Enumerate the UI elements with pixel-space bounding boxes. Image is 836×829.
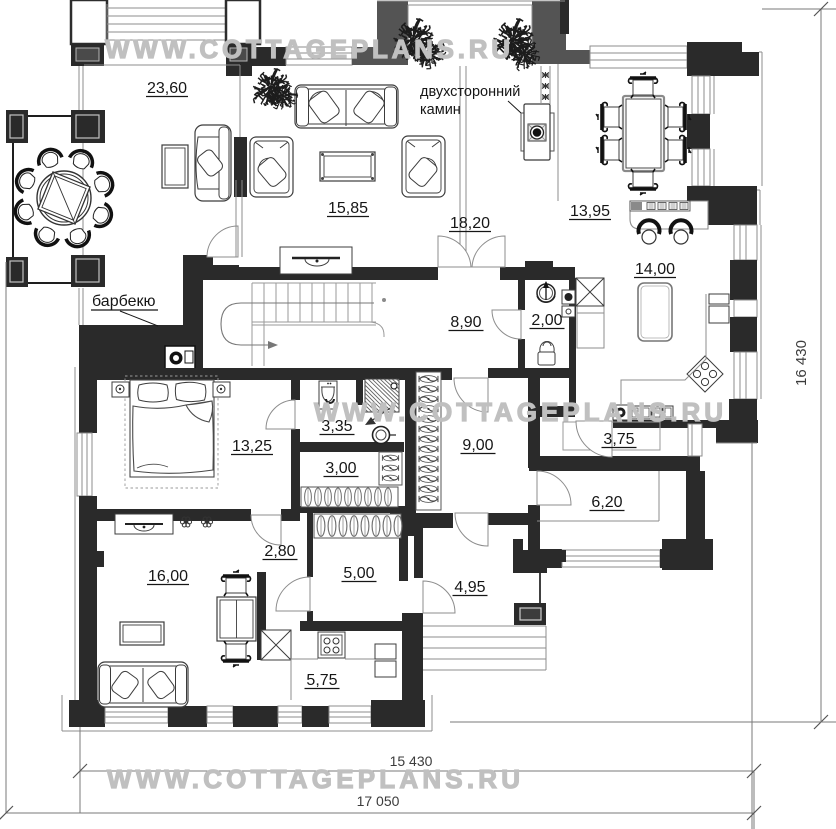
svg-text:3,00: 3,00 [325,460,356,477]
svg-text:13,25: 13,25 [232,438,272,455]
svg-text:WWW.COTTAGEPLANS.RU: WWW.COTTAGEPLANS.RU [105,34,510,64]
svg-text:2,80: 2,80 [264,543,295,560]
svg-text:6,20: 6,20 [591,494,622,511]
svg-text:9,00: 9,00 [462,437,493,454]
svg-text:15,85: 15,85 [328,200,368,217]
svg-text:5,00: 5,00 [343,565,374,582]
svg-text:18,20: 18,20 [450,215,490,232]
svg-text:17 050: 17 050 [357,793,400,809]
svg-text:двухсторонний: двухсторонний [420,84,520,100]
svg-text:2,00: 2,00 [531,312,562,329]
svg-text:WWW.COTTAGEPLANS.RU: WWW.COTTAGEPLANS.RU [107,764,520,794]
svg-text:14,00: 14,00 [635,261,675,278]
svg-text:23,60: 23,60 [147,80,187,97]
svg-text:4,95: 4,95 [454,579,485,596]
svg-text:16 430: 16 430 [793,340,810,386]
svg-text:16,00: 16,00 [148,568,188,585]
svg-text:камин: камин [420,102,461,118]
svg-text:13,95: 13,95 [570,203,610,220]
svg-text:барбекю: барбекю [92,293,155,310]
svg-text:3,75: 3,75 [603,431,634,448]
svg-text:8,90: 8,90 [450,314,481,331]
svg-text:5,75: 5,75 [306,672,337,689]
svg-text:WWW.COTTAGEPLANS.RU: WWW.COTTAGEPLANS.RU [314,397,723,427]
